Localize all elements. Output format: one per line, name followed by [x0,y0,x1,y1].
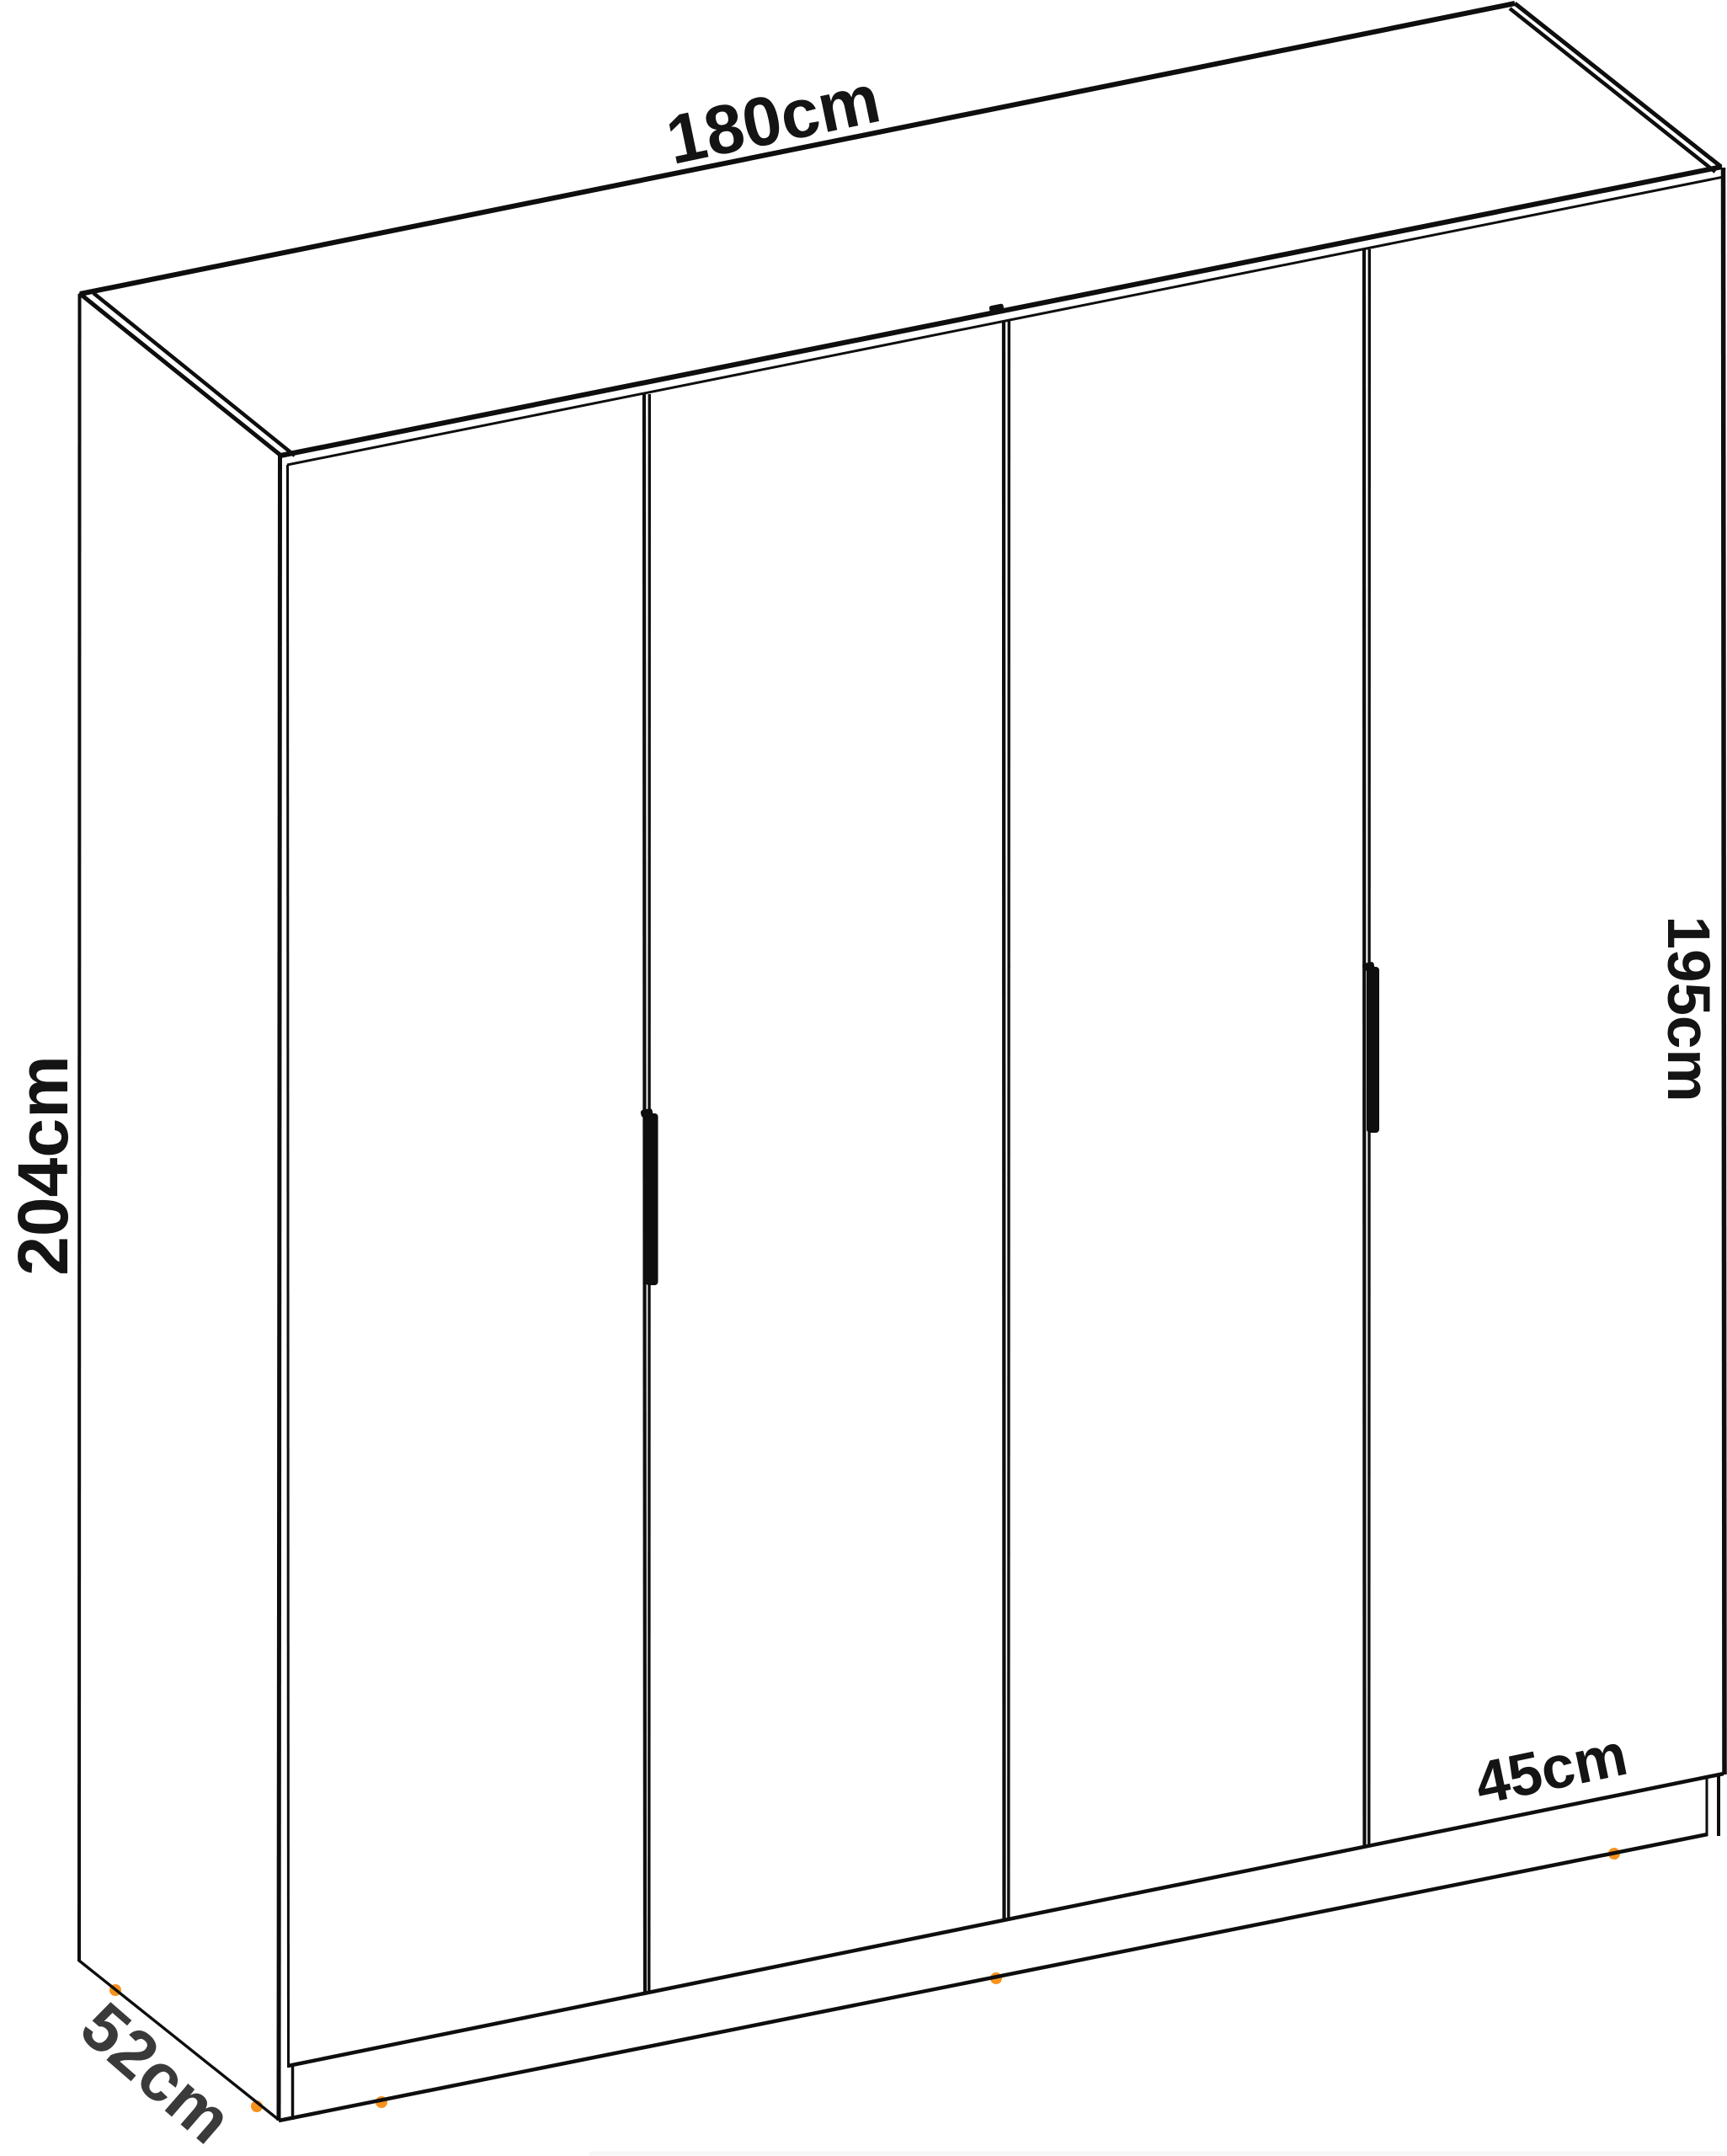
svg-text:204cm: 204cm [3,1055,83,1276]
svg-text:195cm: 195cm [1655,915,1721,1102]
